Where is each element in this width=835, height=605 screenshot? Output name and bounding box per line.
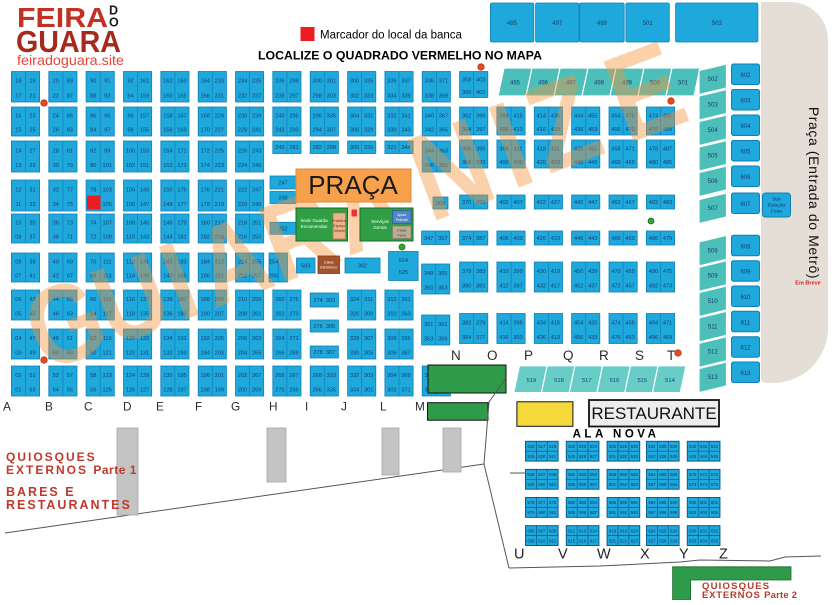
svg-text:307: 307 — [364, 336, 373, 342]
svg-text:282: 282 — [313, 145, 322, 151]
svg-text:610: 610 — [740, 295, 751, 301]
svg-text:169: 169 — [177, 128, 186, 134]
svg-text:551: 551 — [549, 482, 557, 487]
svg-text:575: 575 — [711, 482, 719, 487]
svg-text:633: 633 — [689, 538, 697, 543]
svg-text:268: 268 — [275, 373, 284, 379]
svg-text:267: 267 — [289, 373, 298, 379]
svg-text:223: 223 — [215, 163, 224, 169]
svg-text:162: 162 — [163, 79, 172, 85]
svg-text:506: 506 — [708, 179, 719, 185]
svg-text:266: 266 — [275, 350, 284, 356]
svg-text:174: 174 — [201, 163, 210, 169]
svg-text:554: 554 — [590, 472, 598, 477]
svg-text:608: 608 — [549, 529, 557, 534]
svg-text:475: 475 — [663, 269, 672, 275]
svg-text:349: 349 — [424, 271, 433, 277]
svg-text:202: 202 — [238, 373, 247, 379]
svg-text:293: 293 — [289, 128, 298, 134]
svg-text:84: 84 — [90, 128, 96, 134]
svg-text:518: 518 — [549, 444, 557, 449]
svg-text:416: 416 — [499, 335, 508, 341]
svg-text:82: 82 — [90, 148, 96, 154]
svg-text:224: 224 — [238, 163, 247, 169]
svg-text:309: 309 — [364, 311, 373, 317]
svg-text:332: 332 — [350, 373, 359, 379]
svg-text:32: 32 — [53, 187, 59, 193]
svg-text:635: 635 — [711, 538, 719, 543]
svg-text:540: 540 — [689, 444, 697, 449]
svg-text:281: 281 — [289, 145, 298, 151]
svg-text:598: 598 — [659, 510, 667, 515]
svg-text:588: 588 — [609, 500, 617, 505]
svg-text:90: 90 — [90, 79, 96, 85]
svg-text:469: 469 — [663, 335, 672, 341]
svg-text:612: 612 — [568, 529, 576, 534]
svg-text:414: 414 — [499, 321, 508, 327]
svg-text:09: 09 — [15, 235, 21, 241]
svg-text:Y: Y — [679, 547, 689, 563]
svg-text:237: 237 — [252, 93, 261, 99]
svg-text:362: 362 — [358, 264, 367, 270]
svg-text:380: 380 — [462, 283, 471, 289]
svg-text:271: 271 — [289, 336, 298, 342]
svg-text:265: 265 — [252, 350, 261, 356]
svg-text:236: 236 — [275, 79, 284, 85]
svg-text:350: 350 — [424, 285, 433, 291]
svg-text:235: 235 — [252, 79, 261, 85]
svg-text:369: 369 — [401, 373, 410, 379]
svg-text:Espaço: Espaço — [333, 224, 345, 228]
svg-text:226: 226 — [238, 148, 247, 154]
svg-text:609: 609 — [527, 538, 535, 543]
svg-text:249: 249 — [275, 145, 284, 151]
svg-text:F: F — [195, 400, 202, 414]
svg-text:353: 353 — [424, 336, 433, 342]
svg-text:274 303: 274 303 — [313, 298, 335, 304]
svg-text:605: 605 — [711, 510, 719, 515]
svg-text:J: J — [341, 400, 347, 414]
svg-text:263: 263 — [252, 336, 261, 342]
svg-text:602: 602 — [711, 500, 719, 505]
svg-text:98: 98 — [127, 128, 133, 134]
svg-text:577: 577 — [538, 500, 546, 505]
svg-text:11: 11 — [15, 202, 21, 208]
svg-text:79: 79 — [67, 163, 73, 169]
svg-text:545: 545 — [711, 454, 719, 459]
svg-text:198: 198 — [201, 387, 210, 393]
svg-text:612: 612 — [740, 346, 751, 352]
svg-text:434: 434 — [537, 321, 546, 327]
svg-text:462: 462 — [611, 200, 620, 206]
svg-text:514: 514 — [665, 378, 675, 384]
svg-text:197: 197 — [177, 387, 186, 393]
svg-text:603: 603 — [740, 99, 751, 105]
svg-text:406: 406 — [499, 236, 508, 242]
svg-text:305: 305 — [327, 114, 336, 120]
svg-text:382: 382 — [462, 321, 471, 327]
svg-text:562: 562 — [620, 482, 628, 487]
svg-text:305: 305 — [364, 350, 373, 356]
svg-text:447: 447 — [588, 200, 597, 206]
svg-text:442: 442 — [574, 200, 583, 206]
svg-text:363: 363 — [401, 311, 410, 317]
svg-text:472: 472 — [611, 283, 620, 289]
svg-text:149: 149 — [140, 187, 149, 193]
svg-text:432: 432 — [537, 283, 546, 289]
svg-text:194: 194 — [201, 350, 210, 356]
svg-text:30: 30 — [53, 163, 59, 169]
svg-text:D: D — [123, 400, 132, 414]
svg-text:227: 227 — [215, 128, 224, 134]
svg-text:387: 387 — [476, 236, 485, 242]
svg-text:525: 525 — [399, 270, 408, 276]
svg-text:563: 563 — [631, 482, 639, 487]
svg-text:616: 616 — [579, 538, 587, 543]
svg-text:303: 303 — [327, 93, 336, 99]
svg-text:628: 628 — [659, 538, 667, 543]
svg-text:566: 566 — [670, 472, 678, 477]
svg-text:552: 552 — [568, 472, 576, 477]
svg-text:334: 334 — [350, 387, 359, 393]
svg-text:363: 363 — [438, 285, 447, 291]
svg-text:334: 334 — [387, 93, 396, 99]
svg-text:97: 97 — [104, 128, 110, 134]
svg-text:08: 08 — [15, 260, 21, 266]
svg-text:96: 96 — [127, 114, 133, 120]
svg-text:564: 564 — [648, 472, 656, 477]
svg-text:29: 29 — [29, 163, 35, 169]
svg-text:520: 520 — [538, 454, 546, 459]
svg-text:R: R — [599, 348, 609, 363]
svg-text:L: L — [380, 400, 387, 414]
svg-text:590: 590 — [631, 500, 639, 505]
svg-text:626: 626 — [670, 529, 678, 534]
svg-text:295: 295 — [289, 114, 298, 120]
svg-text:94: 94 — [127, 93, 133, 99]
svg-text:546: 546 — [527, 472, 535, 477]
svg-text:EXTERNOS Parte 2: EXTERNOS Parte 2 — [702, 590, 797, 600]
svg-text:371: 371 — [401, 387, 410, 393]
svg-text:473: 473 — [663, 283, 672, 289]
svg-text:486: 486 — [649, 236, 658, 242]
svg-text:203: 203 — [215, 350, 224, 356]
svg-text:34: 34 — [53, 202, 59, 208]
svg-text:241: 241 — [252, 128, 261, 134]
svg-text:632: 632 — [711, 529, 719, 534]
svg-text:205: 205 — [215, 336, 224, 342]
svg-text:555: 555 — [568, 482, 576, 487]
svg-text:51: 51 — [29, 373, 35, 379]
svg-text:502: 502 — [708, 77, 719, 83]
svg-text:39: 39 — [29, 260, 35, 266]
svg-text:Feira: Feira — [398, 234, 406, 238]
svg-text:19: 19 — [29, 79, 35, 85]
svg-text:584: 584 — [590, 500, 598, 505]
svg-text:Fraldário: Fraldário — [332, 219, 346, 223]
svg-text:U: U — [514, 547, 524, 563]
svg-text:E: E — [156, 400, 164, 414]
svg-text:25: 25 — [29, 128, 35, 134]
svg-text:582: 582 — [568, 500, 576, 505]
svg-text:156: 156 — [163, 128, 172, 134]
svg-text:624: 624 — [648, 529, 656, 534]
svg-text:630: 630 — [689, 529, 697, 534]
svg-text:617: 617 — [590, 538, 598, 543]
svg-text:335: 335 — [327, 387, 336, 393]
svg-text:634: 634 — [700, 538, 708, 543]
svg-text:Sub: Sub — [772, 197, 781, 203]
svg-text:452: 452 — [574, 283, 583, 289]
svg-text:625: 625 — [659, 529, 667, 534]
svg-text:587: 587 — [590, 510, 598, 515]
svg-text:492: 492 — [649, 283, 658, 289]
svg-text:175: 175 — [177, 187, 186, 193]
svg-text:QUIOSQUES: QUIOSQUES — [6, 450, 97, 464]
svg-text:193: 193 — [177, 350, 186, 356]
svg-text:276 305: 276 305 — [313, 324, 335, 330]
svg-text:365: 365 — [438, 271, 447, 277]
svg-text:104: 104 — [126, 187, 135, 193]
svg-text:22: 22 — [53, 93, 59, 99]
svg-text:594: 594 — [648, 500, 656, 505]
svg-text:171: 171 — [177, 148, 186, 154]
svg-text:101: 101 — [103, 163, 112, 169]
svg-text:294: 294 — [313, 128, 322, 134]
svg-text:225: 225 — [215, 148, 224, 154]
svg-text:455: 455 — [625, 321, 634, 327]
svg-text:Sede Guarda: Sede Guarda — [300, 218, 328, 223]
svg-text:196: 196 — [201, 373, 210, 379]
svg-text:99: 99 — [104, 148, 110, 154]
svg-text:522: 522 — [568, 444, 576, 449]
svg-text:23: 23 — [29, 114, 35, 120]
svg-text:463: 463 — [625, 236, 634, 242]
svg-text:611: 611 — [741, 320, 751, 326]
svg-text:306: 306 — [350, 128, 359, 134]
svg-text:607: 607 — [740, 202, 751, 208]
svg-text:531: 531 — [609, 454, 617, 459]
svg-text:457: 457 — [625, 283, 634, 289]
svg-text:G: G — [231, 400, 240, 414]
svg-text:159: 159 — [140, 93, 149, 99]
svg-text:306: 306 — [387, 350, 396, 356]
svg-text:148: 148 — [163, 202, 172, 208]
svg-text:393: 393 — [513, 335, 522, 341]
svg-text:599: 599 — [670, 510, 678, 515]
svg-text:593: 593 — [631, 510, 639, 515]
svg-text:265: 265 — [289, 387, 298, 393]
svg-text:483: 483 — [663, 200, 672, 206]
svg-text:Apoio: Apoio — [397, 213, 406, 217]
svg-text:597: 597 — [648, 510, 656, 515]
svg-text:106: 106 — [126, 202, 135, 208]
svg-text:543: 543 — [689, 454, 697, 459]
svg-text:S: S — [635, 348, 644, 363]
svg-text:242: 242 — [275, 128, 284, 134]
svg-text:361: 361 — [438, 322, 447, 328]
svg-text:15: 15 — [15, 128, 21, 134]
svg-text:519: 519 — [527, 454, 535, 459]
svg-text:476: 476 — [611, 335, 620, 341]
svg-text:102: 102 — [126, 163, 135, 169]
svg-text:300: 300 — [350, 79, 359, 85]
svg-text:91: 91 — [104, 79, 110, 85]
svg-text:335: 335 — [364, 79, 373, 85]
svg-text:565: 565 — [659, 472, 667, 477]
svg-text:453: 453 — [625, 335, 634, 341]
svg-text:544: 544 — [700, 454, 708, 459]
svg-text:513: 513 — [708, 375, 719, 381]
svg-text:596: 596 — [670, 500, 678, 505]
svg-text:150: 150 — [163, 187, 172, 193]
svg-text:24: 24 — [53, 114, 59, 120]
svg-text:152: 152 — [163, 163, 172, 169]
svg-text:240: 240 — [275, 114, 284, 120]
svg-text:16: 16 — [15, 114, 21, 120]
svg-text:303: 303 — [364, 373, 373, 379]
svg-text:304: 304 — [387, 373, 396, 379]
svg-text:548: 548 — [549, 472, 557, 477]
svg-text:176: 176 — [201, 187, 210, 193]
svg-text:200: 200 — [238, 387, 247, 393]
svg-text:413: 413 — [551, 335, 560, 341]
svg-text:615: 615 — [568, 538, 576, 543]
svg-text:201: 201 — [215, 373, 224, 379]
svg-text:O: O — [487, 348, 498, 363]
svg-text:618: 618 — [609, 529, 617, 534]
svg-text:10: 10 — [15, 221, 21, 227]
svg-text:365: 365 — [401, 336, 410, 342]
svg-text:516: 516 — [610, 378, 620, 384]
svg-text:537: 537 — [648, 454, 656, 459]
svg-text:629: 629 — [670, 538, 678, 543]
svg-text:534: 534 — [648, 444, 656, 449]
svg-text:T: T — [667, 348, 675, 363]
svg-text:525: 525 — [568, 454, 576, 459]
svg-text:266: 266 — [313, 387, 322, 393]
svg-text:581: 581 — [549, 510, 557, 515]
svg-text:430: 430 — [537, 269, 546, 275]
svg-text:01: 01 — [15, 387, 21, 393]
svg-text:539: 539 — [670, 454, 678, 459]
svg-text:72: 72 — [90, 235, 96, 241]
svg-text:592: 592 — [620, 510, 628, 515]
svg-text:613: 613 — [579, 529, 587, 534]
svg-text:166: 166 — [201, 93, 210, 99]
svg-text:557: 557 — [590, 482, 598, 487]
svg-text:28: 28 — [53, 148, 59, 154]
svg-text:127: 127 — [140, 387, 149, 393]
svg-text:87: 87 — [67, 93, 73, 99]
svg-text:572: 572 — [711, 472, 719, 477]
svg-text:312: 312 — [387, 297, 396, 303]
svg-text:268: 268 — [313, 373, 322, 379]
svg-text:P: P — [524, 348, 533, 363]
svg-text:524: 524 — [399, 258, 408, 264]
svg-text:feiradoguara.site: feiradoguara.site — [17, 52, 124, 68]
svg-text:326: 326 — [350, 311, 359, 317]
svg-text:454: 454 — [574, 321, 583, 327]
svg-text:302: 302 — [387, 387, 396, 393]
svg-text:336: 336 — [387, 79, 396, 85]
svg-text:603: 603 — [689, 510, 697, 515]
svg-text:417: 417 — [551, 283, 560, 289]
svg-text:505: 505 — [708, 154, 719, 160]
svg-text:535: 535 — [659, 444, 667, 449]
svg-text:621: 621 — [609, 538, 617, 543]
svg-text:474: 474 — [611, 321, 620, 327]
svg-text:75: 75 — [67, 202, 73, 208]
svg-text:328: 328 — [350, 336, 359, 342]
svg-text:601: 601 — [700, 500, 708, 505]
svg-text:170: 170 — [201, 128, 210, 134]
svg-text:298: 298 — [327, 145, 336, 151]
svg-text:Encomendas: Encomendas — [301, 224, 329, 229]
svg-text:300: 300 — [313, 79, 322, 85]
svg-text:579: 579 — [527, 510, 535, 515]
svg-text:479: 479 — [663, 236, 672, 242]
svg-text:X: X — [640, 547, 650, 563]
svg-text:604: 604 — [740, 124, 751, 130]
svg-text:423: 423 — [551, 236, 560, 242]
svg-text:336: 336 — [425, 79, 434, 85]
svg-text:168: 168 — [201, 114, 210, 120]
svg-text:H: H — [269, 400, 278, 414]
svg-text:397: 397 — [476, 127, 485, 133]
svg-text:606: 606 — [527, 529, 535, 534]
svg-text:509: 509 — [708, 274, 719, 280]
svg-text:73: 73 — [67, 221, 73, 227]
svg-text:92: 92 — [127, 79, 133, 85]
svg-text:20: 20 — [53, 79, 59, 85]
svg-text:574: 574 — [700, 482, 708, 487]
svg-text:508: 508 — [708, 248, 719, 254]
svg-text:510: 510 — [708, 299, 719, 305]
svg-text:273: 273 — [289, 311, 298, 317]
svg-text:164: 164 — [201, 79, 210, 85]
svg-text:523: 523 — [579, 444, 587, 449]
svg-text:167: 167 — [177, 114, 186, 120]
svg-text:516: 516 — [527, 444, 535, 449]
svg-text:456: 456 — [611, 127, 620, 133]
svg-text:585: 585 — [568, 510, 576, 515]
svg-text:160: 160 — [163, 93, 172, 99]
svg-text:333: 333 — [364, 93, 373, 99]
svg-text:181: 181 — [177, 235, 186, 241]
svg-text:188: 188 — [201, 297, 210, 303]
svg-text:569: 569 — [670, 482, 678, 487]
svg-text:129: 129 — [140, 373, 149, 379]
svg-text:528: 528 — [609, 444, 617, 449]
svg-text:446: 446 — [574, 236, 583, 242]
svg-text:233: 233 — [215, 79, 224, 85]
svg-text:Feira: Feira — [771, 209, 782, 215]
svg-text:609: 609 — [740, 270, 751, 276]
svg-text:436: 436 — [537, 335, 546, 341]
svg-text:331: 331 — [364, 114, 373, 120]
svg-text:21: 21 — [29, 93, 35, 99]
svg-text:221: 221 — [215, 187, 224, 193]
svg-text:399: 399 — [513, 269, 522, 275]
svg-text:439: 439 — [588, 269, 597, 275]
svg-text:519: 519 — [526, 378, 536, 384]
svg-text:359: 359 — [438, 336, 447, 342]
svg-text:195: 195 — [177, 373, 186, 379]
svg-text:395: 395 — [513, 321, 522, 327]
svg-text:35: 35 — [29, 221, 35, 227]
svg-text:456: 456 — [574, 335, 583, 341]
